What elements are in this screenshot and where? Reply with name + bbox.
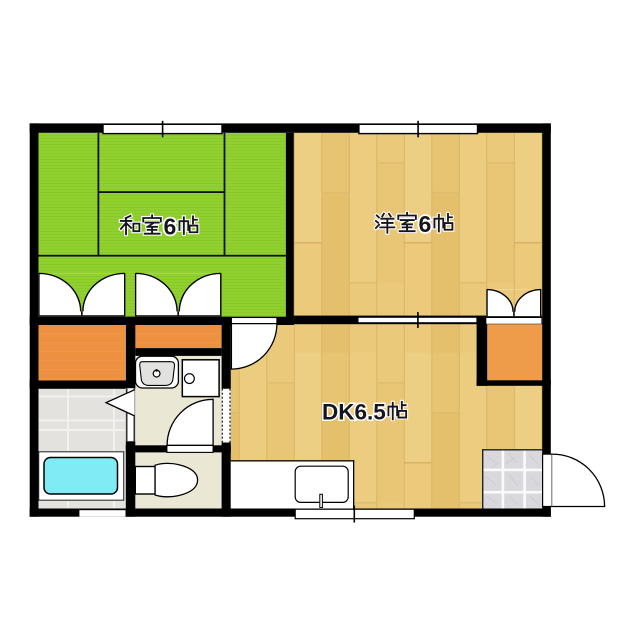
svg-text:6: 6 <box>164 214 177 240</box>
svg-text:6: 6 <box>419 211 432 237</box>
svg-text:DK6.5: DK6.5 <box>322 399 386 424</box>
